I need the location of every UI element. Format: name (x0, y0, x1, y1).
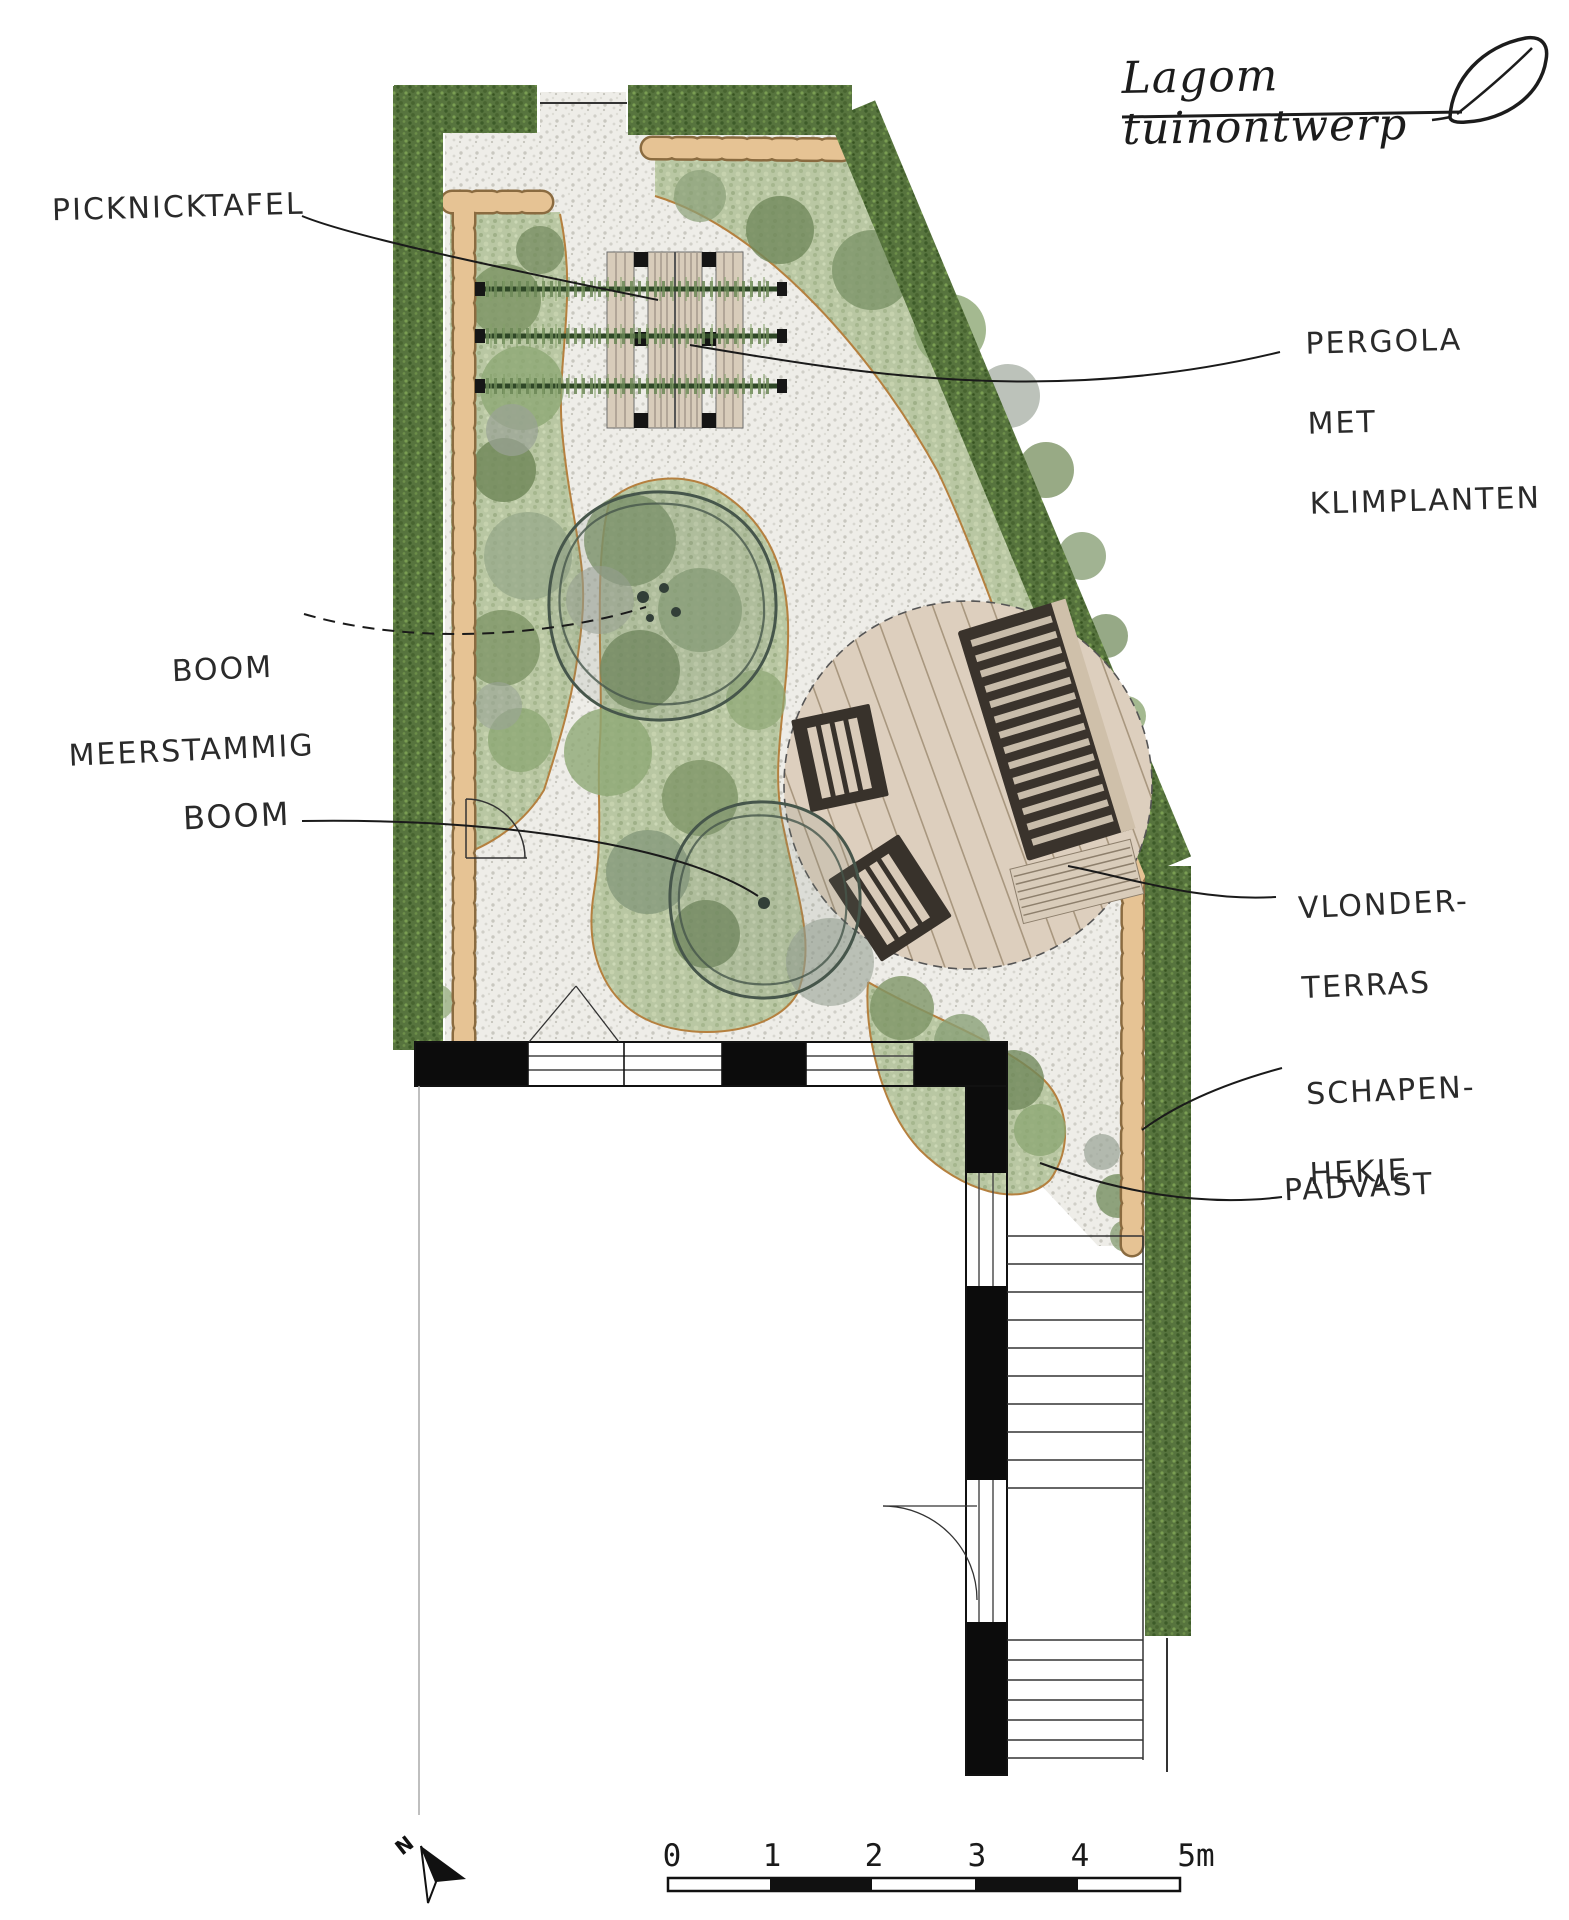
north-label: N (390, 1831, 418, 1860)
label-schapenhekje-line1: SCHAPEN- (1305, 1070, 1476, 1112)
window-mullions (528, 1042, 914, 1086)
scale-tick-2: 2 (865, 1838, 884, 1874)
label-vlonder-line2: TERRAS (1301, 966, 1432, 1007)
scale-bar: 0 1 2 3 4 5m (663, 1838, 1215, 1891)
label-vlonder-line1: VLONDER- (1297, 884, 1469, 926)
logo-brand-text: Lagom tuinontwerp (1121, 47, 1463, 155)
tree-multistem (549, 492, 776, 720)
picnic-table (607, 252, 743, 428)
label-vlonder-terras: VLONDER- TERRAS (1273, 842, 1474, 1010)
label-picknicktafel: PICKNICKTAFEL (52, 185, 306, 232)
label-boom-meerstammig-line2: MEERSTAMMIG (68, 728, 315, 774)
scale-tick-4: 4 (1071, 1838, 1090, 1874)
label-pergola-line2: MET (1307, 405, 1377, 442)
house-walls (415, 1042, 1007, 1775)
scale-tick-0: 0 (663, 1838, 682, 1874)
label-boom: BOOM (182, 794, 291, 839)
label-boom-meerstammig-line1: BOOM (171, 646, 312, 692)
scale-tick-1: 1 (763, 1838, 782, 1874)
tree-trunk (758, 897, 770, 909)
label-padvast: PADVAST (1283, 1165, 1434, 1211)
stairs-lower (1007, 1640, 1143, 1758)
scale-tick-5m: 5m (1177, 1838, 1214, 1874)
house-door-swing (883, 1506, 977, 1600)
label-pergola-line3: KLIMPLANTEN (1309, 481, 1541, 522)
scale-tick-3: 3 (968, 1838, 987, 1874)
label-pergola-line1: PERGOLA (1305, 323, 1463, 362)
label-boom-meerstammig: BOOM MEERSTAMMIG (38, 566, 316, 778)
label-pergola: PERGOLA MET KLIMPLANTEN (1281, 279, 1542, 526)
stairs-upper (1007, 1236, 1143, 1488)
tree-single (670, 802, 860, 998)
north-arrow: N (390, 1831, 466, 1903)
garden-plan-canvas: N 0 1 2 3 4 5m Lagom tuinontwerp PICKNIC… (0, 0, 1569, 1920)
